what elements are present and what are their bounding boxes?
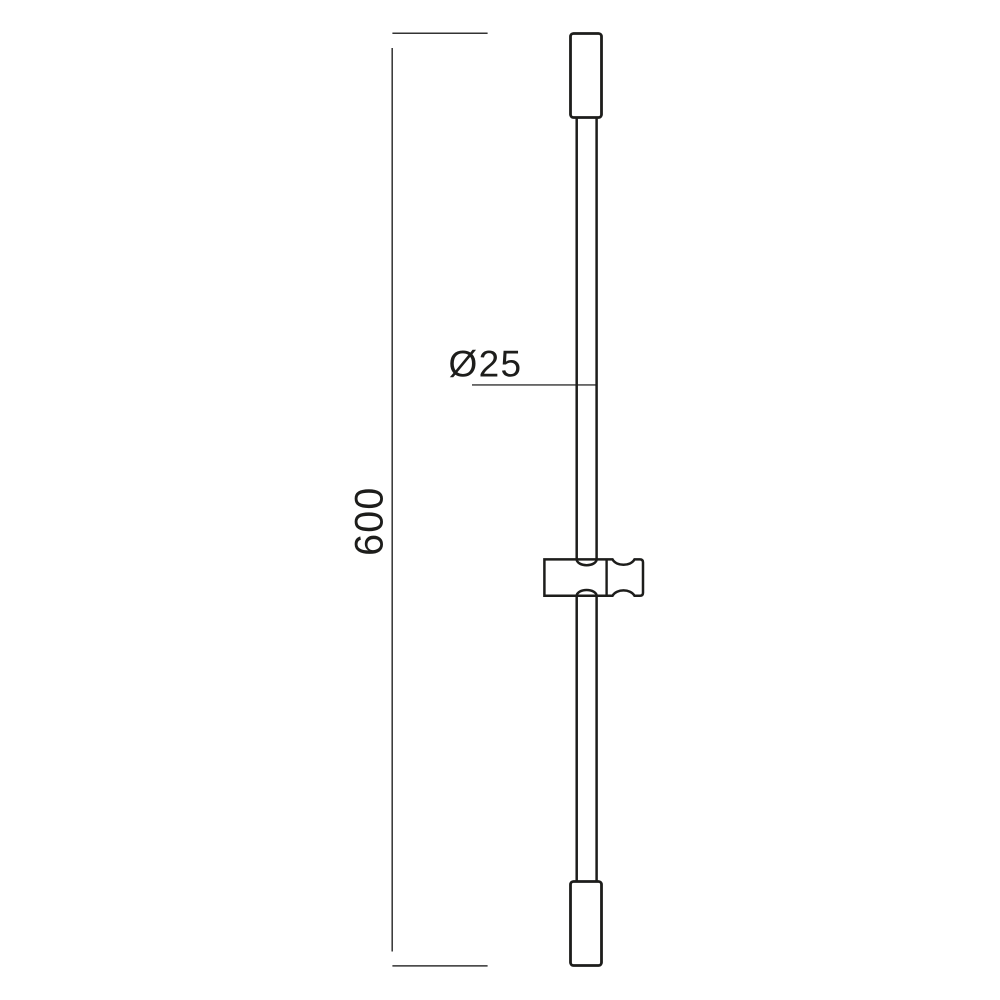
svg-text:Ø25: Ø25 xyxy=(449,344,523,385)
svg-text:600: 600 xyxy=(347,486,391,556)
